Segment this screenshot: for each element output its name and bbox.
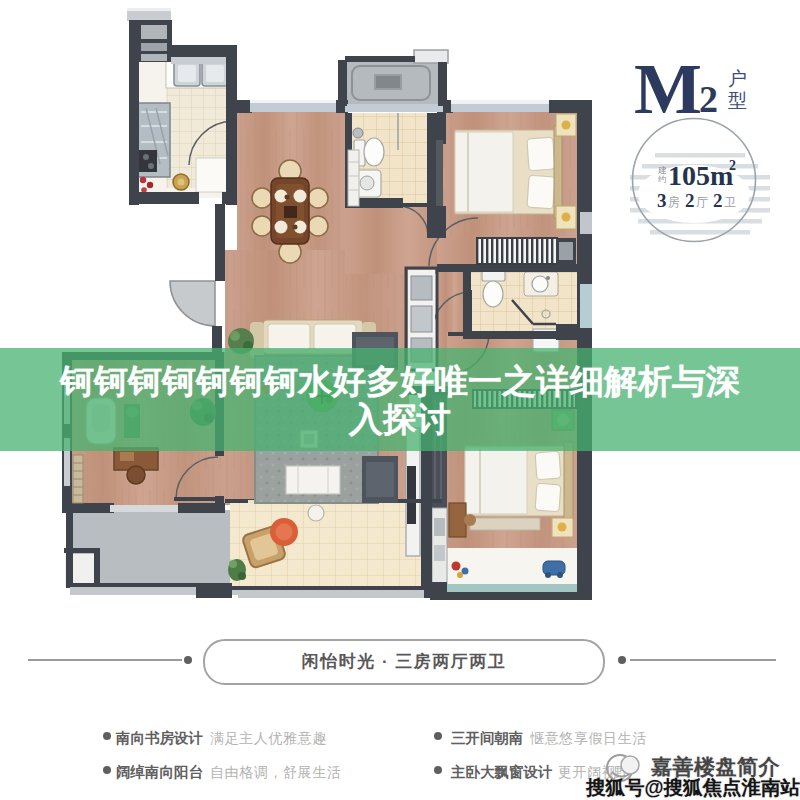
svg-text:105m: 105m (668, 160, 733, 191)
svg-text:厅: 厅 (696, 195, 708, 209)
svg-text:房: 房 (668, 195, 680, 209)
svg-text:3: 3 (657, 190, 667, 211)
svg-text:约: 约 (658, 174, 667, 184)
svg-text:2: 2 (685, 190, 695, 211)
svg-text:2: 2 (713, 190, 723, 211)
svg-text:卫: 卫 (724, 195, 736, 209)
svg-text:2: 2 (729, 158, 736, 173)
